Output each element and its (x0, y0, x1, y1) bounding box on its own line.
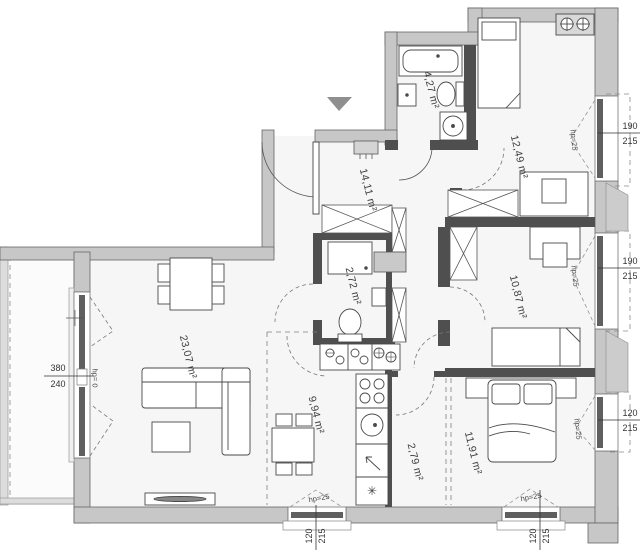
bed-double (488, 380, 556, 462)
dim-bottom-bedroom-width: 120 (528, 522, 538, 550)
dim-bottom-bedroom-height: 215 (541, 522, 551, 550)
kitchen-counter-top (320, 344, 400, 370)
dim-right-bottom-width: 120 (616, 408, 640, 418)
dim-right-bottom-height: 215 (616, 423, 640, 433)
desk-chair-middle (543, 243, 567, 267)
hp-label-left: hp= 0 (91, 369, 100, 388)
dim-right-middle-width: 190 (616, 256, 640, 266)
floor-plan-drawing (0, 0, 640, 550)
dim-left-width: 380 (44, 363, 72, 373)
window-right-top (595, 96, 618, 181)
washing-machine-icon (440, 112, 467, 140)
wardrobe-bedroom-middle (450, 227, 477, 280)
wardrobe-hall-strip-upper (392, 208, 406, 252)
freezer-icon: ✳ (367, 484, 377, 498)
desk-chair-top (542, 179, 566, 203)
bath-toilet-icon (437, 82, 464, 106)
wc-toilet-icon (338, 309, 362, 342)
duct-shaft (374, 252, 406, 272)
bath-sink-icon (398, 84, 416, 106)
coffee-table (152, 422, 190, 452)
bed-single-top (478, 18, 520, 108)
sink-icon (361, 414, 383, 436)
window-left (66, 288, 90, 462)
tv-stand (145, 493, 215, 505)
entrance-marker-icon (327, 97, 352, 111)
dim-right-middle-height: 215 (616, 271, 640, 281)
wc-sink-icon (372, 288, 386, 306)
dim-bottom-kitchen-height: 215 (317, 522, 327, 550)
wardrobe-bedroom-top (448, 190, 518, 217)
dim-right-top-width: 190 (616, 121, 640, 131)
dim-right-top-height: 215 (616, 136, 640, 146)
floor-plan: 23,07 m² 9,94 m² 14,11 m² 2,72 m² 4,27 m… (0, 0, 640, 550)
vent-box-icon (556, 14, 594, 35)
wardrobe-hall-strip-lower (392, 288, 406, 342)
wardrobe-hall-top (322, 205, 392, 233)
window-right-middle (595, 233, 618, 329)
window-right-bottom (595, 394, 618, 451)
bed-single-middle (492, 328, 580, 366)
dim-left-height: 240 (44, 379, 72, 389)
dim-bottom-kitchen-width: 120 (304, 522, 314, 550)
